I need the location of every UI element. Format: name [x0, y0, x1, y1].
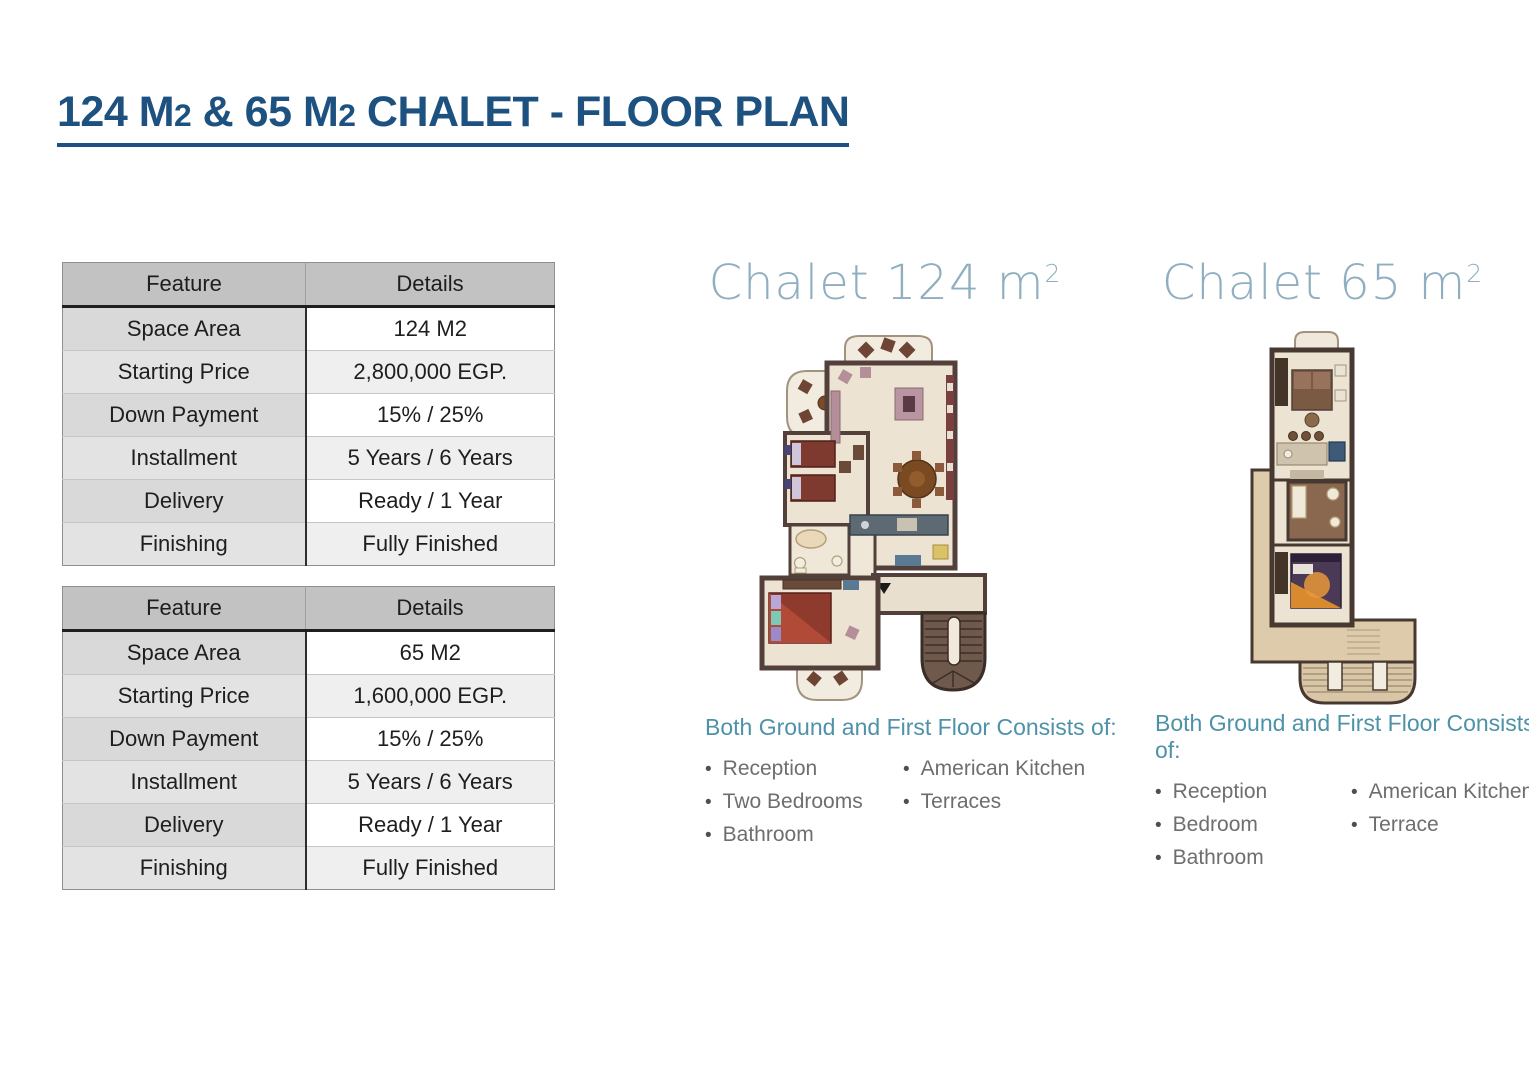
- table-row: DeliveryReady / 1 Year: [63, 480, 555, 523]
- detail-cell: 15% / 25%: [306, 394, 555, 437]
- feature-cell: Down Payment: [63, 718, 306, 761]
- floor-plan-124-image: [745, 333, 995, 707]
- feature-cell: Starting Price: [63, 675, 306, 718]
- list-item-label: Bathroom: [723, 823, 814, 847]
- page-title: 124 M2 & 65 M2 CHALET - FLOOR PLAN: [57, 88, 849, 147]
- title-text: CHALET - FLOOR PLAN: [355, 88, 849, 136]
- feature-cell: Starting Price: [63, 351, 306, 394]
- table-row: Installment5 Years / 6 Years: [63, 437, 555, 480]
- bullet-icon: •: [1155, 848, 1162, 870]
- entry-corridor: [873, 575, 985, 613]
- feature-cell: Space Area: [63, 307, 306, 351]
- detail-cell: 5 Years / 6 Years: [306, 761, 555, 804]
- feature-cell: Finishing: [63, 523, 306, 566]
- table-row: Starting Price2,800,000 EGP.: [63, 351, 555, 394]
- bullet-icon: •: [705, 825, 712, 847]
- list-item: •Reception: [1155, 780, 1351, 804]
- heading-text: Chalet 65 m: [1162, 255, 1466, 311]
- list-item-label: Two Bedrooms: [723, 790, 863, 814]
- title-text: 124 M: [57, 88, 174, 136]
- list-item-label: Terraces: [921, 790, 1002, 814]
- list-item-label: Bathroom: [1173, 846, 1264, 870]
- bullet-list-left: •Reception •Bedroom •Bathroom: [1155, 780, 1351, 879]
- column-header-details: Details: [306, 587, 555, 631]
- bullet-icon: •: [1351, 782, 1358, 804]
- table-row: Space Area124 M2: [63, 307, 555, 351]
- chalet-65-spec-table: Feature Details Space Area65 M2 Starting…: [62, 586, 555, 890]
- list-item-label: American Kitchen: [921, 757, 1086, 781]
- heading-text: Chalet 124 m: [709, 255, 1045, 311]
- list-item: •Terraces: [903, 790, 1085, 814]
- bullet-icon: •: [903, 759, 910, 781]
- bullet-icon: •: [705, 759, 712, 781]
- bullet-icon: •: [903, 792, 910, 814]
- list-item-label: American Kitchen: [1369, 780, 1529, 804]
- bathroom: [1288, 482, 1346, 540]
- consists-heading: Both Ground and First Floor Consists of:: [1155, 710, 1529, 764]
- bullet-list-left: •Reception •Two Bedrooms •Bathroom: [705, 757, 903, 856]
- bullet-icon: •: [1351, 815, 1358, 837]
- detail-cell: 5 Years / 6 Years: [306, 437, 555, 480]
- heading-superscript: 2: [1466, 259, 1483, 288]
- table-row: Space Area65 M2: [63, 631, 555, 675]
- title-text: & 65 M: [191, 88, 338, 136]
- table-row: Installment5 Years / 6 Years: [63, 761, 555, 804]
- column-header-details: Details: [306, 263, 555, 307]
- list-item-label: Reception: [723, 757, 818, 781]
- list-item-label: Bedroom: [1173, 813, 1258, 837]
- detail-cell: 15% / 25%: [306, 718, 555, 761]
- bullet-list-right: •American Kitchen •Terraces: [903, 757, 1085, 856]
- table-row: DeliveryReady / 1 Year: [63, 804, 555, 847]
- list-item: •Bathroom: [705, 823, 903, 847]
- detail-cell: 65 M2: [306, 631, 555, 675]
- stairs: [922, 613, 985, 690]
- chalet-124-spec-table: Feature Details Space Area124 M2 Startin…: [62, 262, 555, 566]
- table-header-row: Feature Details: [63, 587, 555, 631]
- feature-cell: Space Area: [63, 631, 306, 675]
- chalet-124-description: Both Ground and First Floor Consists of:…: [705, 714, 1125, 856]
- bullet-list-right: •American Kitchen •Terrace: [1351, 780, 1529, 879]
- column-header-feature: Feature: [63, 587, 306, 631]
- title-text: 2: [174, 97, 191, 133]
- list-item: •American Kitchen: [903, 757, 1085, 781]
- detail-cell: 2,800,000 EGP.: [306, 351, 555, 394]
- floor-plan-65-image: [1235, 330, 1445, 705]
- list-item-label: Terrace: [1369, 813, 1439, 837]
- table-header-row: Feature Details: [63, 263, 555, 307]
- list-item: •Bedroom: [1155, 813, 1351, 837]
- table-row: Starting Price1,600,000 EGP.: [63, 675, 555, 718]
- detail-cell: Ready / 1 Year: [306, 804, 555, 847]
- bullet-icon: •: [1155, 782, 1162, 804]
- list-item: •Reception: [705, 757, 903, 781]
- detail-cell: 1,600,000 EGP.: [306, 675, 555, 718]
- table-row: FinishingFully Finished: [63, 847, 555, 890]
- bullet-columns: •Reception •Bedroom •Bathroom •American …: [1155, 780, 1529, 879]
- feature-cell: Delivery: [63, 480, 306, 523]
- bullet-icon: •: [1155, 815, 1162, 837]
- list-item-label: Reception: [1173, 780, 1268, 804]
- feature-cell: Installment: [63, 761, 306, 804]
- column-header-feature: Feature: [63, 263, 306, 307]
- table-row: Down Payment15% / 25%: [63, 718, 555, 761]
- chalet-65-description: Both Ground and First Floor Consists of:…: [1155, 710, 1529, 879]
- feature-cell: Installment: [63, 437, 306, 480]
- heading-superscript: 2: [1045, 259, 1062, 288]
- consists-heading: Both Ground and First Floor Consists of:: [705, 714, 1125, 741]
- list-item: •Two Bedrooms: [705, 790, 903, 814]
- chalet-65-heading: Chalet 65 m2: [1145, 255, 1500, 311]
- table-row: FinishingFully Finished: [63, 523, 555, 566]
- chalet-124-heading: Chalet 124 m2: [705, 255, 1065, 311]
- detail-cell: Fully Finished: [306, 523, 555, 566]
- feature-cell: Delivery: [63, 804, 306, 847]
- bullet-columns: •Reception •Two Bedrooms •Bathroom •Amer…: [705, 757, 1125, 856]
- detail-cell: Ready / 1 Year: [306, 480, 555, 523]
- detail-cell: 124 M2: [306, 307, 555, 351]
- feature-cell: Finishing: [63, 847, 306, 890]
- title-text: 2: [338, 97, 355, 133]
- list-item: •Terrace: [1351, 813, 1529, 837]
- table-row: Down Payment15% / 25%: [63, 394, 555, 437]
- feature-cell: Down Payment: [63, 394, 306, 437]
- bullet-icon: •: [705, 792, 712, 814]
- list-item: •Bathroom: [1155, 846, 1351, 870]
- detail-cell: Fully Finished: [306, 847, 555, 890]
- list-item: •American Kitchen: [1351, 780, 1529, 804]
